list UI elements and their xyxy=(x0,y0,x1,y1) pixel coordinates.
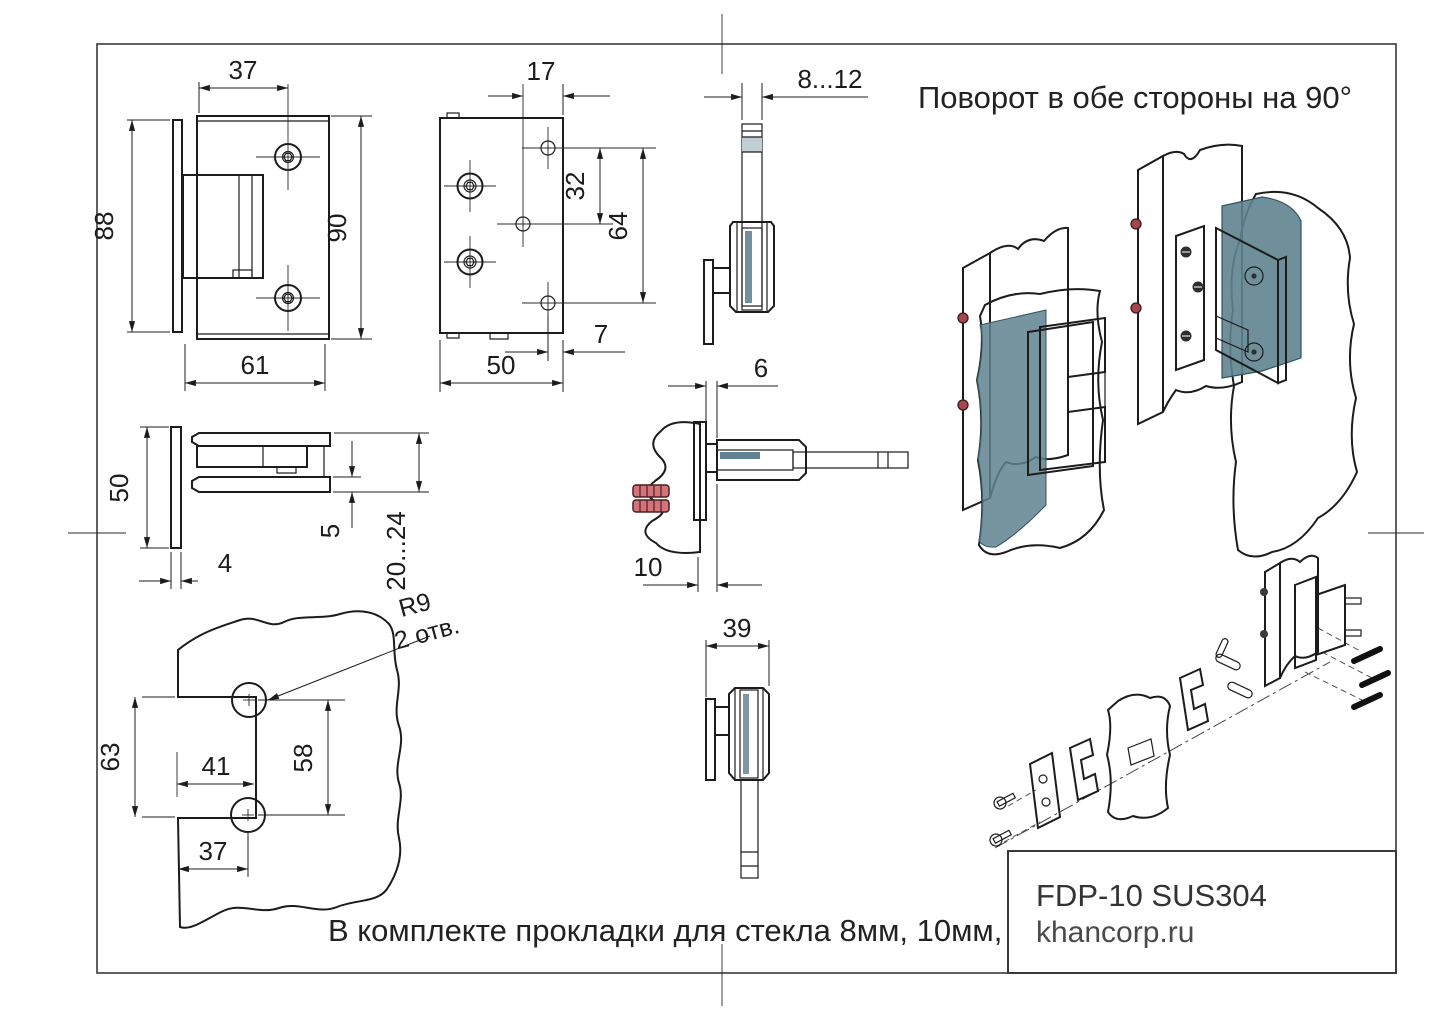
wall-anchor-top xyxy=(633,485,669,497)
iso-right-wall-side xyxy=(1138,156,1163,424)
side-dimension: 39 xyxy=(706,613,769,697)
wall-anchor-bottom xyxy=(633,500,669,512)
front-dimensions: 37 88 90 61 xyxy=(89,55,372,391)
side-view: 39 xyxy=(706,613,769,878)
plan-wall-plate xyxy=(171,427,181,548)
drawing-page: 37 88 90 61 xyxy=(0,0,1444,1020)
iso-left-anchor-dot-bottom xyxy=(958,400,968,410)
technical-drawing: 37 88 90 61 xyxy=(0,0,1444,1020)
dim-back-inner: 32 xyxy=(560,172,590,201)
iso-right-anchor-dot-top xyxy=(1131,219,1141,229)
dim-front-bottom: 61 xyxy=(241,350,270,380)
iso-right-glass-edge xyxy=(1222,197,1301,378)
exploded-glass-notch xyxy=(1128,739,1154,765)
exploded-pins xyxy=(1215,638,1254,699)
dim-section-offset: 10 xyxy=(634,552,663,582)
dim-front-top: 37 xyxy=(229,55,258,85)
title-block-model: FDP-10 SUS304 xyxy=(1036,878,1267,913)
iso-left-glass-overlap xyxy=(977,310,1046,547)
iso-right-assembly xyxy=(1131,145,1357,557)
back-view: 17 32 64 7 50 xyxy=(440,56,656,392)
section-stub xyxy=(706,444,717,472)
wall-bracket-arm xyxy=(713,268,730,293)
dim-plan-plate: 4 xyxy=(218,548,232,578)
plan-clamp-block xyxy=(197,446,307,467)
plan-view: 50 4 5 20...24 xyxy=(104,427,429,591)
wall-bracket-plate xyxy=(704,260,713,344)
iso-left-hinge xyxy=(1040,318,1105,470)
front-knuckle xyxy=(183,175,263,278)
back-screw-bottom xyxy=(444,236,496,288)
back-body xyxy=(440,118,563,333)
exploded-glass xyxy=(1107,695,1170,820)
exploded-wall-part xyxy=(1260,556,1361,686)
dim-back-edge: 7 xyxy=(594,319,608,349)
dim-template-notch-width: 41 xyxy=(202,751,231,781)
side-bracket-arm xyxy=(715,707,729,735)
title-block: FDP-10 SUS304 khancorp.ru xyxy=(1008,851,1396,973)
dim-side-width: 39 xyxy=(723,613,752,643)
back-screw-top xyxy=(444,160,496,212)
iso-left-anchor-dot-top xyxy=(958,313,968,323)
dim-front-left: 88 xyxy=(89,212,119,241)
exploded-view xyxy=(988,556,1388,848)
side-bracket-plate xyxy=(706,699,715,780)
title-block-website: khancorp.ru xyxy=(1036,916,1194,949)
plan-bottom-leaf xyxy=(192,477,330,492)
dim-template-hole-x: 37 xyxy=(199,836,228,866)
glass-edge-dimension: 8...12 xyxy=(704,64,868,120)
dim-template-notch-height: 63 xyxy=(95,743,125,772)
front-screw-bottom xyxy=(256,265,320,331)
front-wall-plate xyxy=(173,120,182,332)
dim-plan-height: 50 xyxy=(104,474,134,503)
dim-section-gap: 6 xyxy=(754,353,768,383)
iso-left-assembly xyxy=(958,228,1105,554)
dim-template-hole-centers: 58 xyxy=(288,744,318,773)
plan-dimensions: 50 4 5 20...24 xyxy=(104,427,429,591)
note-gaskets: В комплекте прокладки для стекла 8мм, 10… xyxy=(328,913,1088,948)
wall-section-view: 6 10 xyxy=(633,353,908,592)
exploded-screw-1 xyxy=(992,790,1017,811)
note-rotation: Поворот в обе стороны на 90° xyxy=(918,80,1352,115)
dim-back-top: 17 xyxy=(527,56,556,86)
exploded-gasket-2 xyxy=(1180,669,1208,730)
plan-top-leaf xyxy=(192,433,330,446)
front-view: 37 88 90 61 xyxy=(89,55,372,391)
iso-right-plate-screws xyxy=(1181,247,1204,342)
dim-plan-lip: 5 xyxy=(315,524,345,538)
dim-back-width: 50 xyxy=(487,350,516,380)
dim-plan-range: 20...24 xyxy=(381,511,411,591)
iso-right-anchor-dot-bottom xyxy=(1131,303,1141,313)
glass-edge-view: 8...12 xyxy=(704,64,868,344)
template-dimensions: 63 41 58 37 R9 2 отв. xyxy=(95,588,462,877)
exploded-gasket-1 xyxy=(1070,739,1098,800)
assembly-axis xyxy=(995,662,1330,848)
template-view: 63 41 58 37 R9 2 отв. xyxy=(95,588,462,928)
iso-right-wall-plate xyxy=(1176,226,1204,370)
section-glass xyxy=(793,452,908,468)
side-glass-below xyxy=(741,780,758,878)
dim-front-right: 90 xyxy=(322,214,352,243)
dim-back-outer: 64 xyxy=(603,212,633,241)
dim-glass-thickness: 8...12 xyxy=(797,64,862,94)
